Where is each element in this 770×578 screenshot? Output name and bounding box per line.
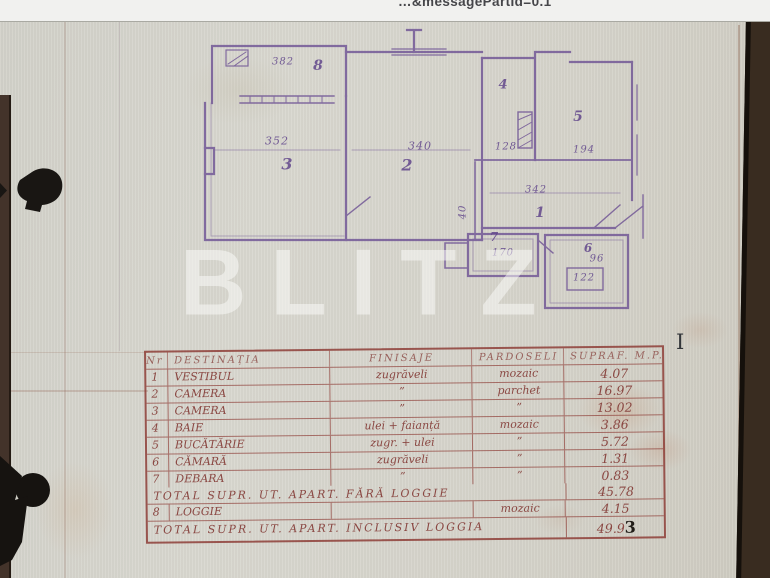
table-cell-nr: 5 (147, 437, 169, 453)
room-number: 2 (401, 156, 412, 175)
photographed-floor-plan-document: …&messagePartId=0.1 (0, 0, 770, 578)
table-cell-finisaje: zugr. + ulei (331, 434, 473, 451)
room-areas-table: Nr DESTINAȚIA FINISAJE PARDOSELI SUPRAF.… (144, 345, 666, 543)
photo-blob-artifact (0, 450, 62, 578)
header-pardoseli: PARDOSELI (472, 348, 564, 365)
room-dimension: 122 (573, 273, 595, 284)
table-cell-pardoseli: mozaic (472, 365, 564, 382)
table-cell-destinatia: VESTIBUL (168, 368, 330, 386)
table-cell-pardoseli: ” (473, 399, 565, 416)
table-cell-suprafata: 13.02 (565, 398, 663, 415)
header-destinatia: DESTINAȚIA (168, 351, 330, 369)
text-cursor: I (676, 330, 684, 354)
total-value: 45.78 (565, 482, 663, 499)
room-dimension: 96 (590, 254, 605, 265)
table-cell-destinatia: BAIE (169, 419, 331, 437)
table-cell-nr: 7 (147, 471, 169, 487)
total-value: 49.93 (566, 516, 664, 537)
room-number: 1 (535, 205, 545, 221)
total-label: TOTAL SUPR. UT. APART. INCLUSIV LOGGIA (148, 517, 566, 541)
table-cell-finisaje (332, 501, 474, 518)
table-cell-destinatia: BUCĂTĂRIE (169, 436, 331, 454)
overwritten-digit: 3 (625, 518, 636, 537)
room-number: 4 (498, 78, 507, 93)
table-cell-nr: 1 (146, 369, 168, 385)
table-cell-nr: 6 (147, 454, 169, 470)
table-cell-destinatia: CAMERA (169, 402, 331, 420)
browser-url-fragment: …&messagePartId=0.1 (398, 0, 552, 9)
photo-blob-artifact (12, 162, 72, 222)
table-cell-pardoseli: mozaic (473, 416, 565, 433)
table-cell-suprafata: 4.15 (566, 499, 664, 516)
room-number: 8 (313, 58, 323, 74)
room-dimension: 382 (272, 57, 294, 68)
table-cell-suprafata: 4.07 (564, 364, 662, 381)
room-dimension: 342 (525, 185, 547, 196)
table-cell-nr: 3 (147, 403, 169, 419)
table-cell-suprafata: 0.83 (565, 466, 663, 483)
table-cell-finisaje: ” (331, 468, 473, 485)
table-cell-destinatia: CĂMARĂ (169, 453, 331, 471)
room-dimension: 128 (495, 142, 517, 153)
header-finisaje: FINISAJE (330, 349, 472, 366)
table-cell-suprafata: 5.72 (565, 432, 663, 449)
table-cell-finisaje: zugrăveli (330, 366, 472, 383)
table-cell-pardoseli: ” (473, 467, 565, 484)
table-cell-suprafata: 1.31 (565, 449, 663, 466)
room-dimension: 340 (408, 140, 432, 153)
room-number: 3 (281, 155, 292, 174)
room-dimension: 194 (573, 145, 595, 156)
table-cell-finisaje: ” (331, 400, 473, 417)
table-cell-pardoseli: ” (473, 433, 565, 450)
table-cell-finisaje: zugrăveli (331, 451, 473, 468)
table-cell-finisaje: ” (330, 383, 472, 400)
table-cell-nr: 2 (146, 386, 168, 402)
table-cell-nr: 8 (148, 504, 170, 520)
table-cell-destinatia: CAMERA (168, 385, 330, 403)
table-body: 1 VESTIBUL zugrăveli mozaic 4.07 2 CAMER… (146, 364, 663, 487)
table-cell-nr: 4 (147, 420, 169, 436)
table-cell-destinatia: DEBARA (169, 470, 331, 488)
header-suprafata: SUPRAF. M.P. (564, 347, 662, 364)
table-cell-pardoseli: mozaic (474, 500, 566, 517)
table-cell-pardoseli: parchet (472, 382, 564, 399)
blitz-watermark: BLITZ (180, 236, 561, 330)
table-cell-pardoseli: ” (473, 450, 565, 467)
total-with-loggia-row: TOTAL SUPR. UT. APART. INCLUSIV LOGGIA 4… (148, 516, 664, 541)
table-cell-destinatia: LOGGIE (170, 503, 332, 521)
table-cell-suprafata: 3.86 (565, 415, 663, 432)
header-nr: Nr (146, 352, 168, 368)
table-cell-suprafata: 16.97 (564, 381, 662, 398)
room-dimension: 352 (265, 135, 289, 148)
table-cell-finisaje: ulei + faianță (331, 417, 473, 434)
browser-top-strip: …&messagePartId=0.1 (0, 0, 770, 22)
room-number: 5 (573, 109, 583, 125)
room-dimension: 40 (458, 205, 469, 220)
